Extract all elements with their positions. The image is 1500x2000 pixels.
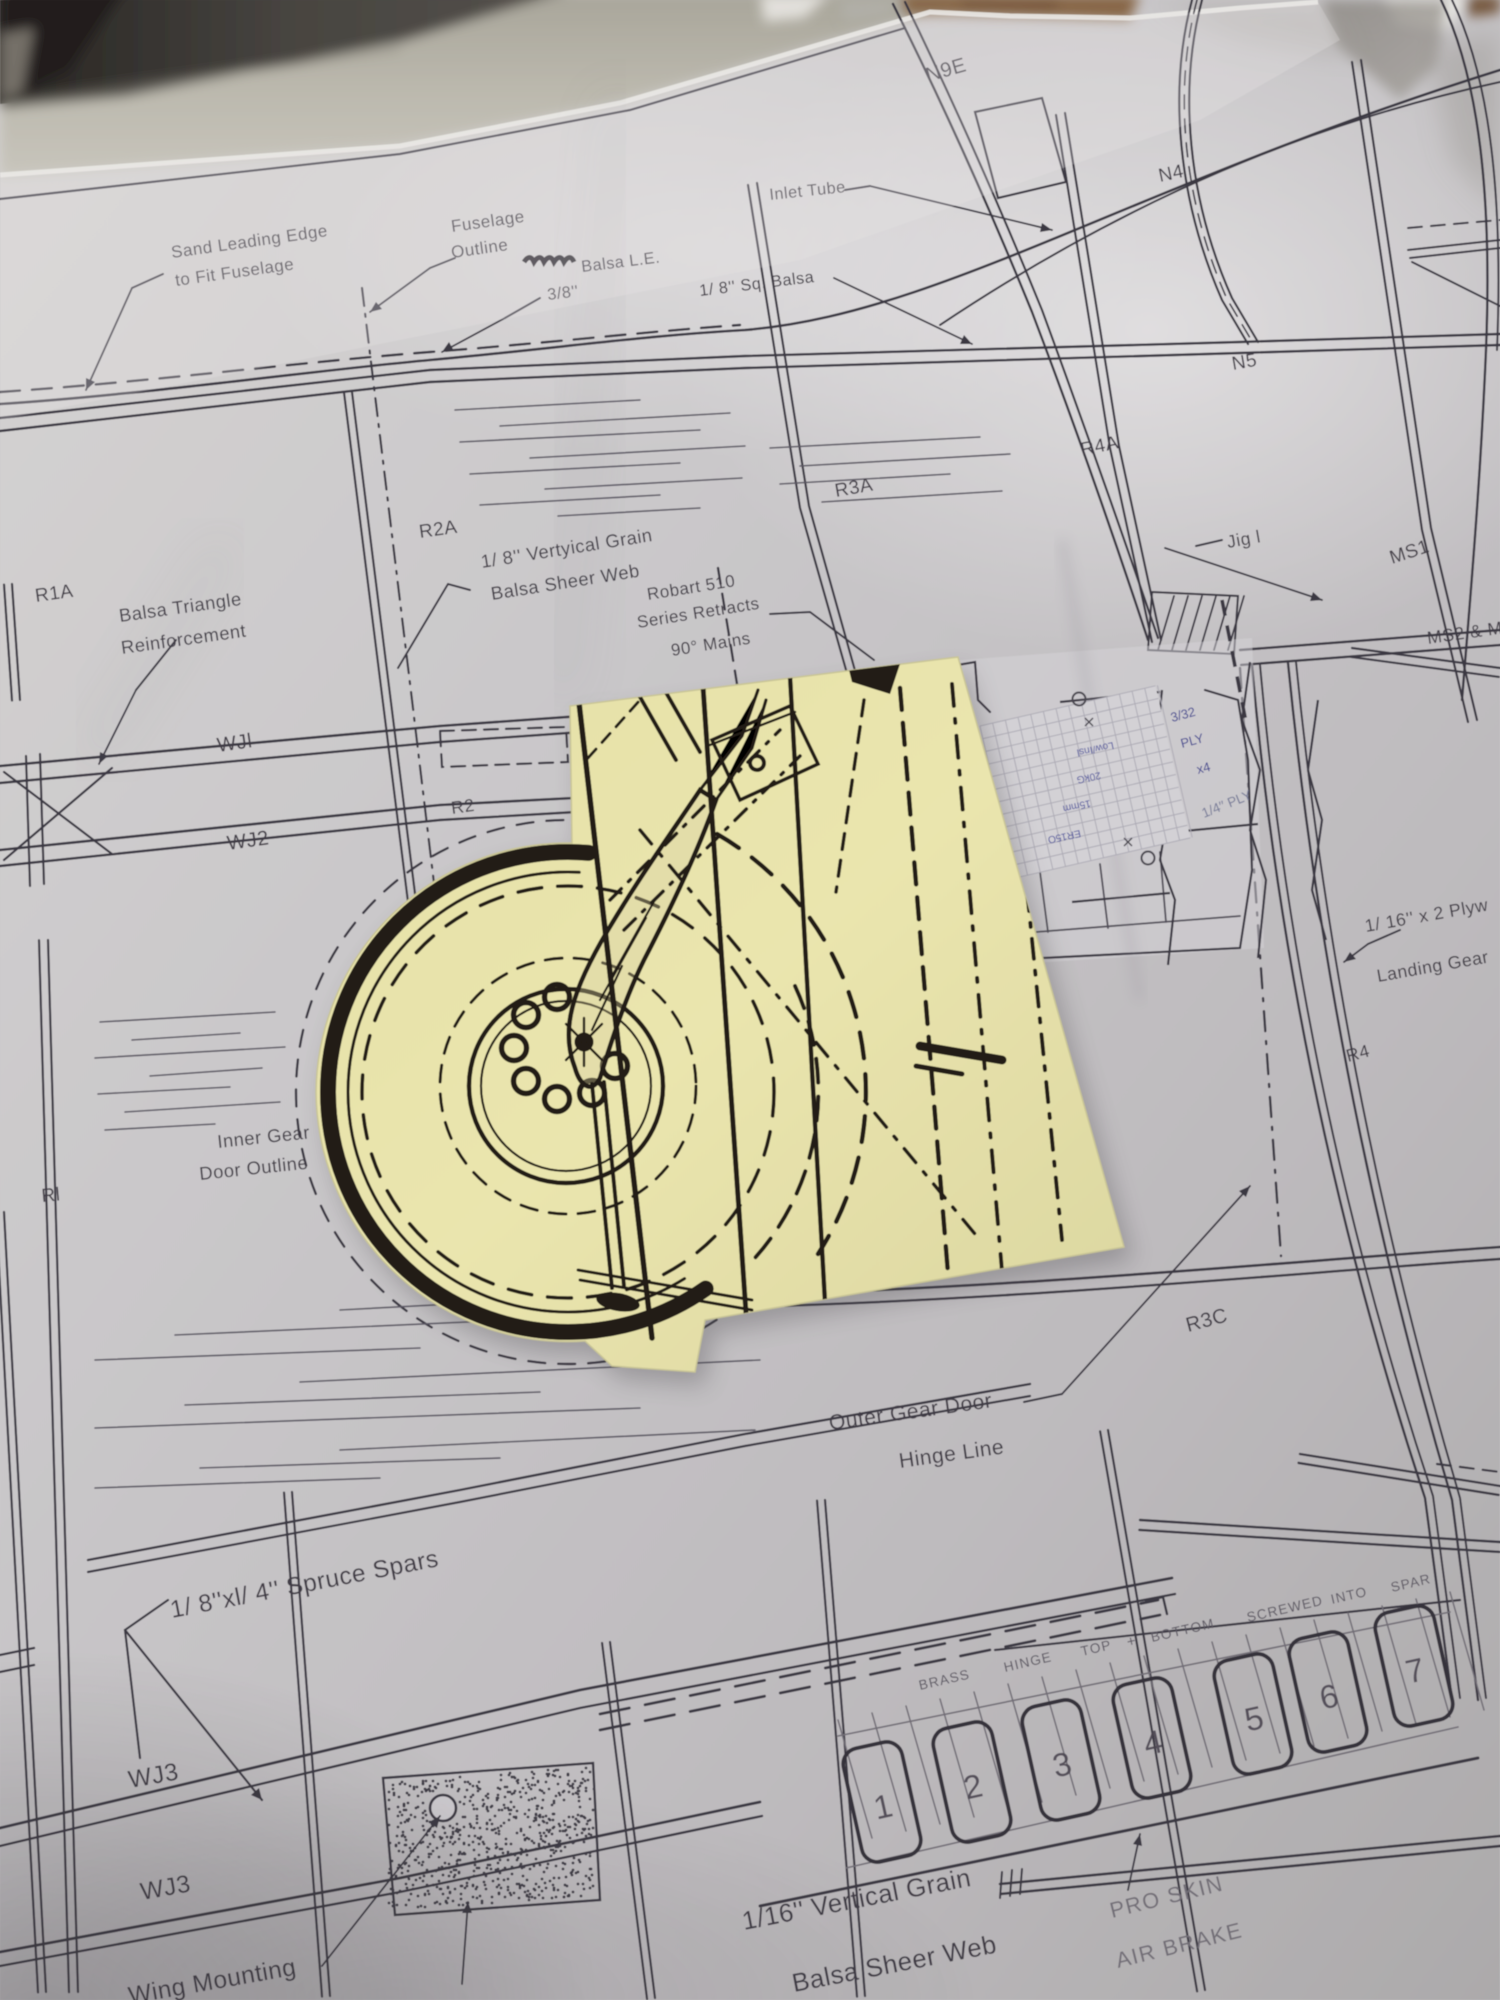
svg-text:Rl: Rl: [41, 1184, 62, 1207]
svg-text:N5: N5: [1230, 350, 1259, 375]
svg-text:R2: R2: [450, 795, 476, 818]
